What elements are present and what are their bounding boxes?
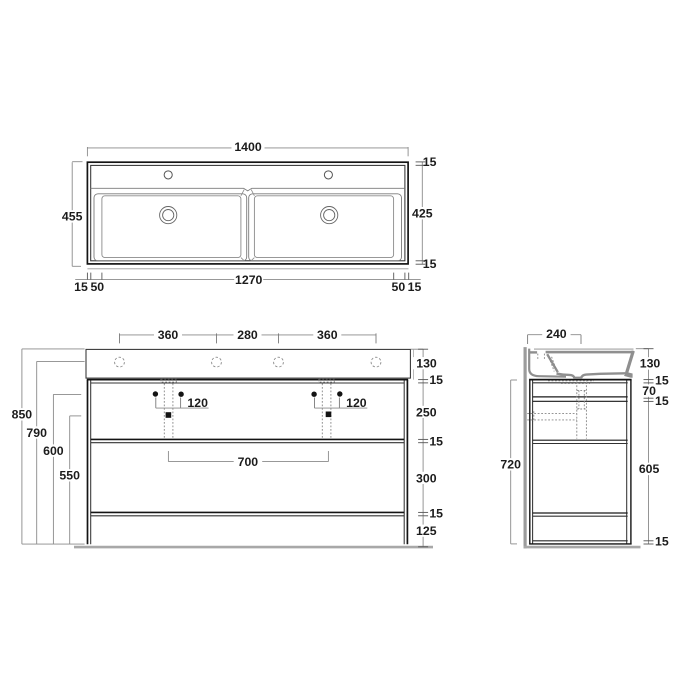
- svg-text:360: 360: [158, 328, 179, 342]
- svg-text:250: 250: [416, 405, 437, 419]
- svg-text:455: 455: [62, 210, 83, 224]
- svg-text:280: 280: [237, 328, 258, 342]
- svg-text:790: 790: [26, 426, 47, 440]
- svg-text:15: 15: [408, 280, 422, 294]
- svg-text:15: 15: [423, 257, 437, 271]
- svg-text:15: 15: [74, 280, 88, 294]
- svg-text:15: 15: [429, 434, 443, 448]
- svg-text:300: 300: [416, 471, 437, 485]
- svg-text:850: 850: [12, 408, 33, 422]
- svg-text:550: 550: [59, 469, 80, 483]
- svg-text:70: 70: [642, 384, 656, 398]
- svg-text:50: 50: [90, 280, 104, 294]
- svg-text:120: 120: [346, 396, 367, 410]
- svg-text:125: 125: [416, 524, 437, 538]
- svg-text:1400: 1400: [234, 140, 262, 154]
- svg-text:600: 600: [43, 444, 64, 458]
- svg-text:15: 15: [429, 373, 443, 387]
- svg-text:15: 15: [429, 507, 443, 521]
- svg-text:15: 15: [655, 535, 669, 549]
- svg-text:15: 15: [655, 374, 669, 388]
- svg-text:120: 120: [187, 396, 208, 410]
- svg-text:1270: 1270: [235, 273, 263, 287]
- svg-text:360: 360: [317, 328, 338, 342]
- svg-text:130: 130: [416, 357, 437, 371]
- svg-text:15: 15: [423, 155, 437, 169]
- svg-text:700: 700: [238, 455, 259, 469]
- svg-text:605: 605: [639, 462, 660, 476]
- svg-text:130: 130: [640, 357, 661, 371]
- svg-text:15: 15: [655, 394, 669, 408]
- svg-text:240: 240: [546, 327, 567, 341]
- svg-text:720: 720: [500, 458, 521, 472]
- svg-text:50: 50: [392, 280, 406, 294]
- svg-text:425: 425: [412, 206, 433, 220]
